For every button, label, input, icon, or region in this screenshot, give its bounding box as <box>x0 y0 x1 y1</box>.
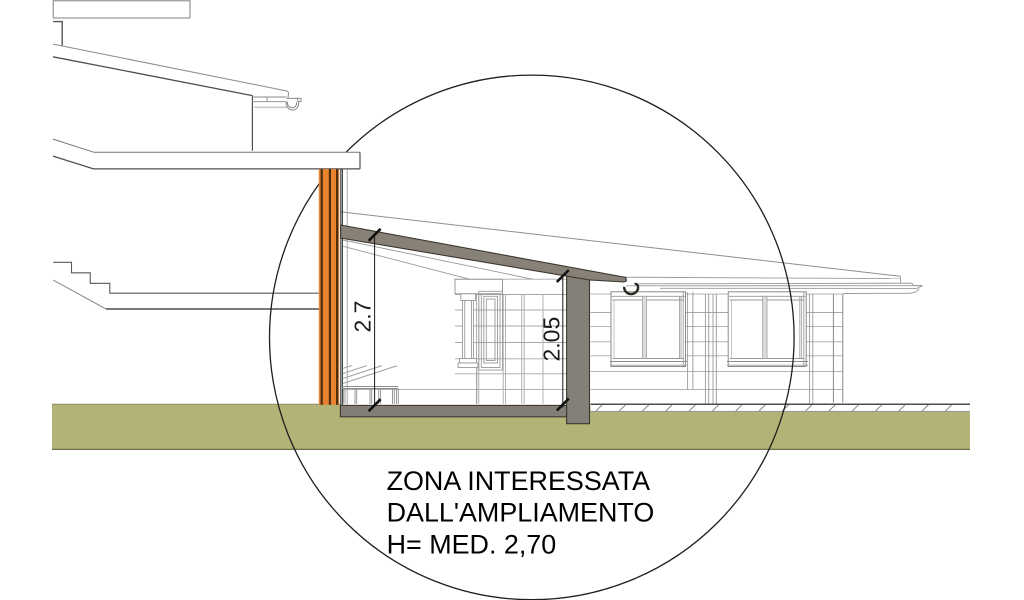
svg-text:DALL'AMPLIAMENTO: DALL'AMPLIAMENTO <box>387 498 655 528</box>
svg-text:ZONA INTERESSATA: ZONA INTERESSATA <box>387 466 651 496</box>
svg-text:2.05: 2.05 <box>539 317 565 362</box>
svg-text:H= MED. 2,70: H= MED. 2,70 <box>387 529 557 559</box>
svg-text:2.7: 2.7 <box>350 301 376 333</box>
